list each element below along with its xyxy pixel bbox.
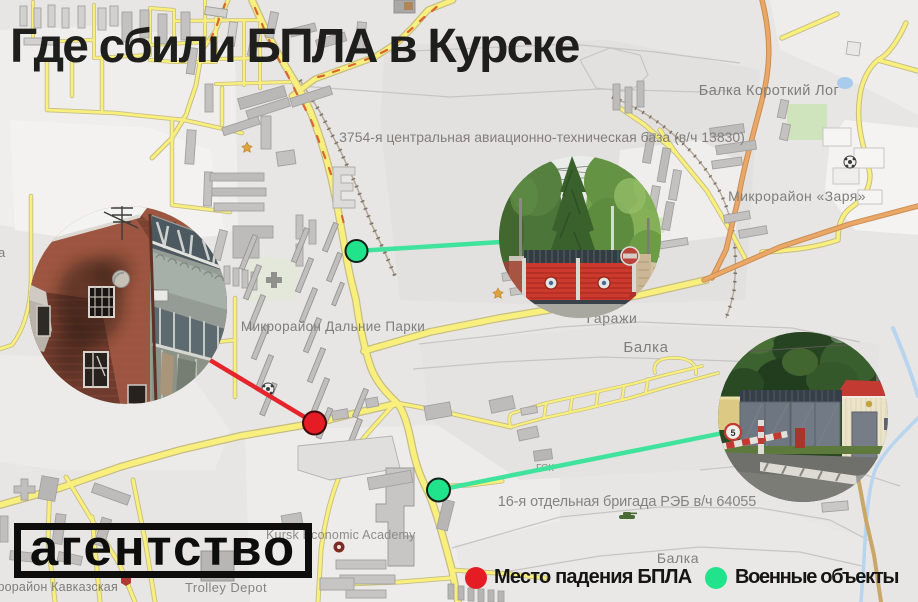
svg-text:Микрорайон Дальние Парки: Микрорайон Дальние Парки [241,319,425,334]
svg-text:16-я отдельная бригада РЭБ в/ч: 16-я отдельная бригада РЭБ в/ч 64055 [498,494,757,510]
svg-text:3754-я центральная авиационно-: 3754-я центральная авиационно-техническа… [339,129,745,145]
svg-text:Балка: Балка [623,339,668,356]
svg-text:Балка Короткий Лог: Балка Короткий Лог [699,83,839,99]
svg-text:а: а [0,245,6,260]
svg-text:5: 5 [730,428,735,438]
svg-text:Микрорайон «Заря»: Микрорайон «Заря» [728,188,866,204]
